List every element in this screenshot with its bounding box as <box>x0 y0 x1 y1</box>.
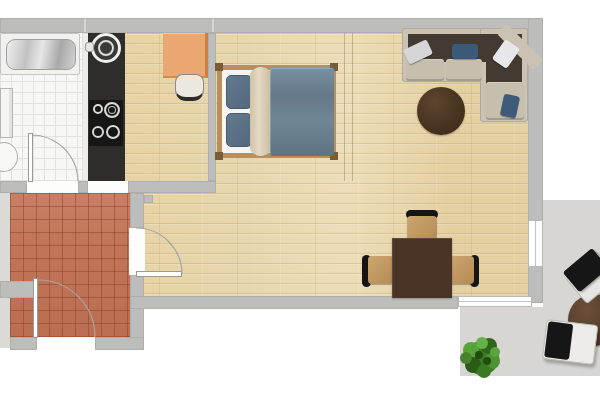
wall-hallway-right <box>130 193 144 228</box>
dining-chair[interactable] <box>368 256 394 284</box>
wall-stub <box>144 195 153 203</box>
hallway-living-door-opening <box>129 228 145 275</box>
sofa-cushion <box>446 59 482 81</box>
sink-basin <box>98 40 114 56</box>
duvet <box>270 68 334 156</box>
bathroom-door-leaf[interactable] <box>28 133 33 182</box>
desk[interactable] <box>163 33 208 78</box>
bathroom-door-opening <box>27 181 78 193</box>
coffee-table[interactable] <box>417 87 465 135</box>
double-bed[interactable] <box>217 65 336 158</box>
bed-pillow <box>226 75 252 109</box>
hallway-terracotta-floor <box>10 185 144 337</box>
bed-post <box>215 63 223 71</box>
balcony-window-right[interactable] <box>528 220 543 267</box>
blanket-roll <box>250 67 272 156</box>
kitchen-doorway-opening <box>88 181 128 193</box>
wall-under-bathroom <box>78 181 88 193</box>
kitchen-sink[interactable] <box>91 33 121 63</box>
bathtub[interactable] <box>0 33 80 75</box>
burner <box>93 104 103 114</box>
vanity-cabinet[interactable] <box>0 88 13 138</box>
desk-chair[interactable] <box>175 74 204 101</box>
chair-cushion <box>544 321 573 360</box>
dining-table[interactable] <box>392 238 452 298</box>
adjacent-area-cutoff <box>0 193 10 348</box>
bathtub-basin <box>6 39 76 70</box>
wall-hallway-bottom <box>95 337 144 350</box>
wall-under-kitchen <box>128 181 216 193</box>
dining-chair[interactable] <box>407 216 437 240</box>
entry-door-leaf[interactable] <box>33 278 38 338</box>
hallway-living-door-leaf[interactable] <box>136 271 182 277</box>
room-divider-line <box>344 33 345 181</box>
burner <box>92 126 104 138</box>
wall-under-bathroom <box>0 181 27 193</box>
bed-post <box>215 152 223 160</box>
burner <box>106 125 120 139</box>
floor-plan-canvas <box>0 0 600 400</box>
wall-stub-left <box>0 281 35 298</box>
cooktop[interactable] <box>89 100 123 146</box>
balcony-window-bottom[interactable] <box>458 296 532 307</box>
wall-seam <box>212 19 214 32</box>
burner <box>104 102 120 118</box>
wall-hallway-bottom <box>10 337 37 350</box>
bed-pillow <box>226 113 252 147</box>
throw-pillow <box>452 44 478 59</box>
balcony-chair[interactable] <box>542 319 599 367</box>
potted-plant[interactable] <box>458 334 506 382</box>
wall-seam <box>84 19 86 32</box>
entry-door-opening <box>37 337 95 350</box>
faucet <box>85 42 94 52</box>
room-divider-line <box>352 33 353 181</box>
